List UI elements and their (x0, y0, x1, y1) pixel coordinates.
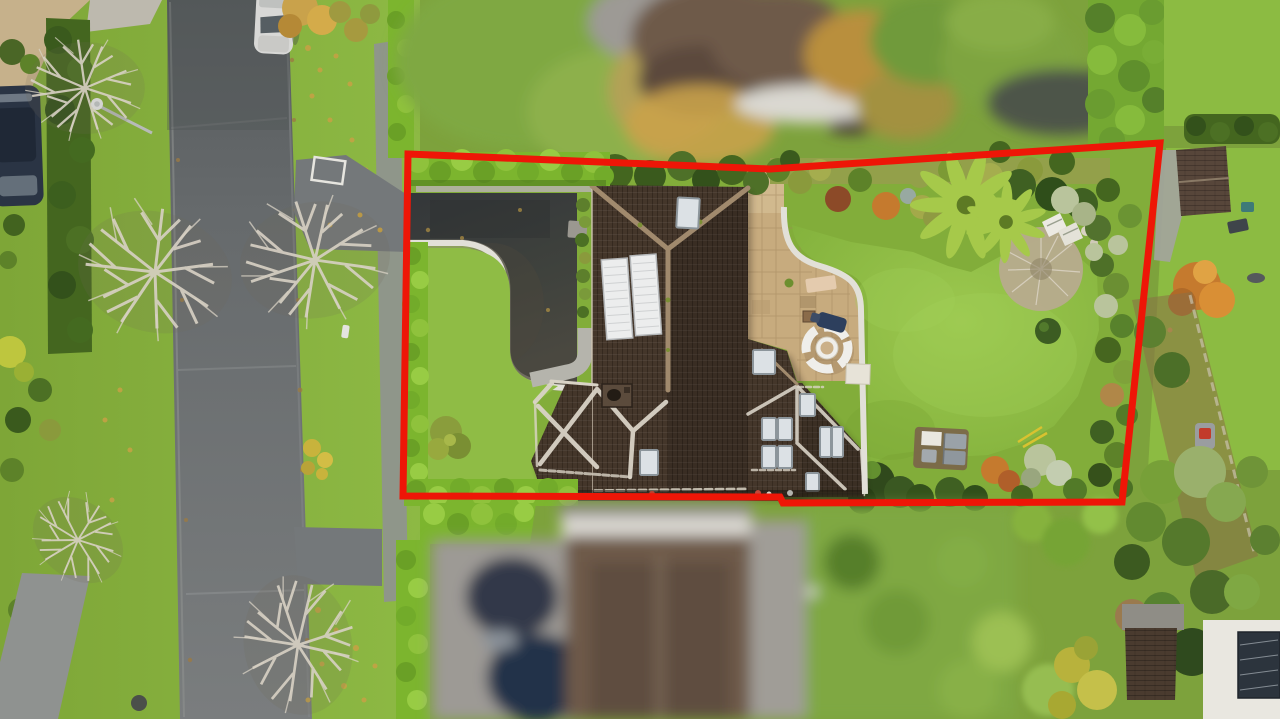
maroon-shrub (825, 186, 851, 212)
bottom-scene (396, 498, 1118, 719)
property-grounds (402, 141, 1160, 514)
dark-hedge-tr (1184, 114, 1280, 144)
garden-step-pad (846, 364, 871, 385)
solar-panel (1238, 632, 1280, 698)
neighbor-house-top (395, 0, 1137, 174)
entrance-apron-lower (294, 527, 382, 586)
neighbor-garage (1122, 604, 1184, 700)
neighbor-shed (1176, 146, 1231, 216)
garden-sofa-set (913, 427, 969, 471)
manhole-cover (131, 695, 147, 711)
aerial-photo: Aerial drone photograph of a detached su… (0, 0, 1280, 719)
lawn-bush (1035, 318, 1061, 344)
blurred-car (466, 557, 558, 637)
potted-plant (785, 279, 794, 288)
bottom-hedge (404, 478, 578, 506)
chimney (602, 384, 632, 407)
orange-shrub (872, 192, 900, 220)
neighbor-lawn-tr (1164, 0, 1280, 126)
neighbor-outbuilding (1203, 620, 1280, 719)
street-scene (0, 0, 420, 719)
neighbor-garden-top-right (1085, 0, 1280, 153)
tall-hedge-column (1085, 0, 1168, 153)
